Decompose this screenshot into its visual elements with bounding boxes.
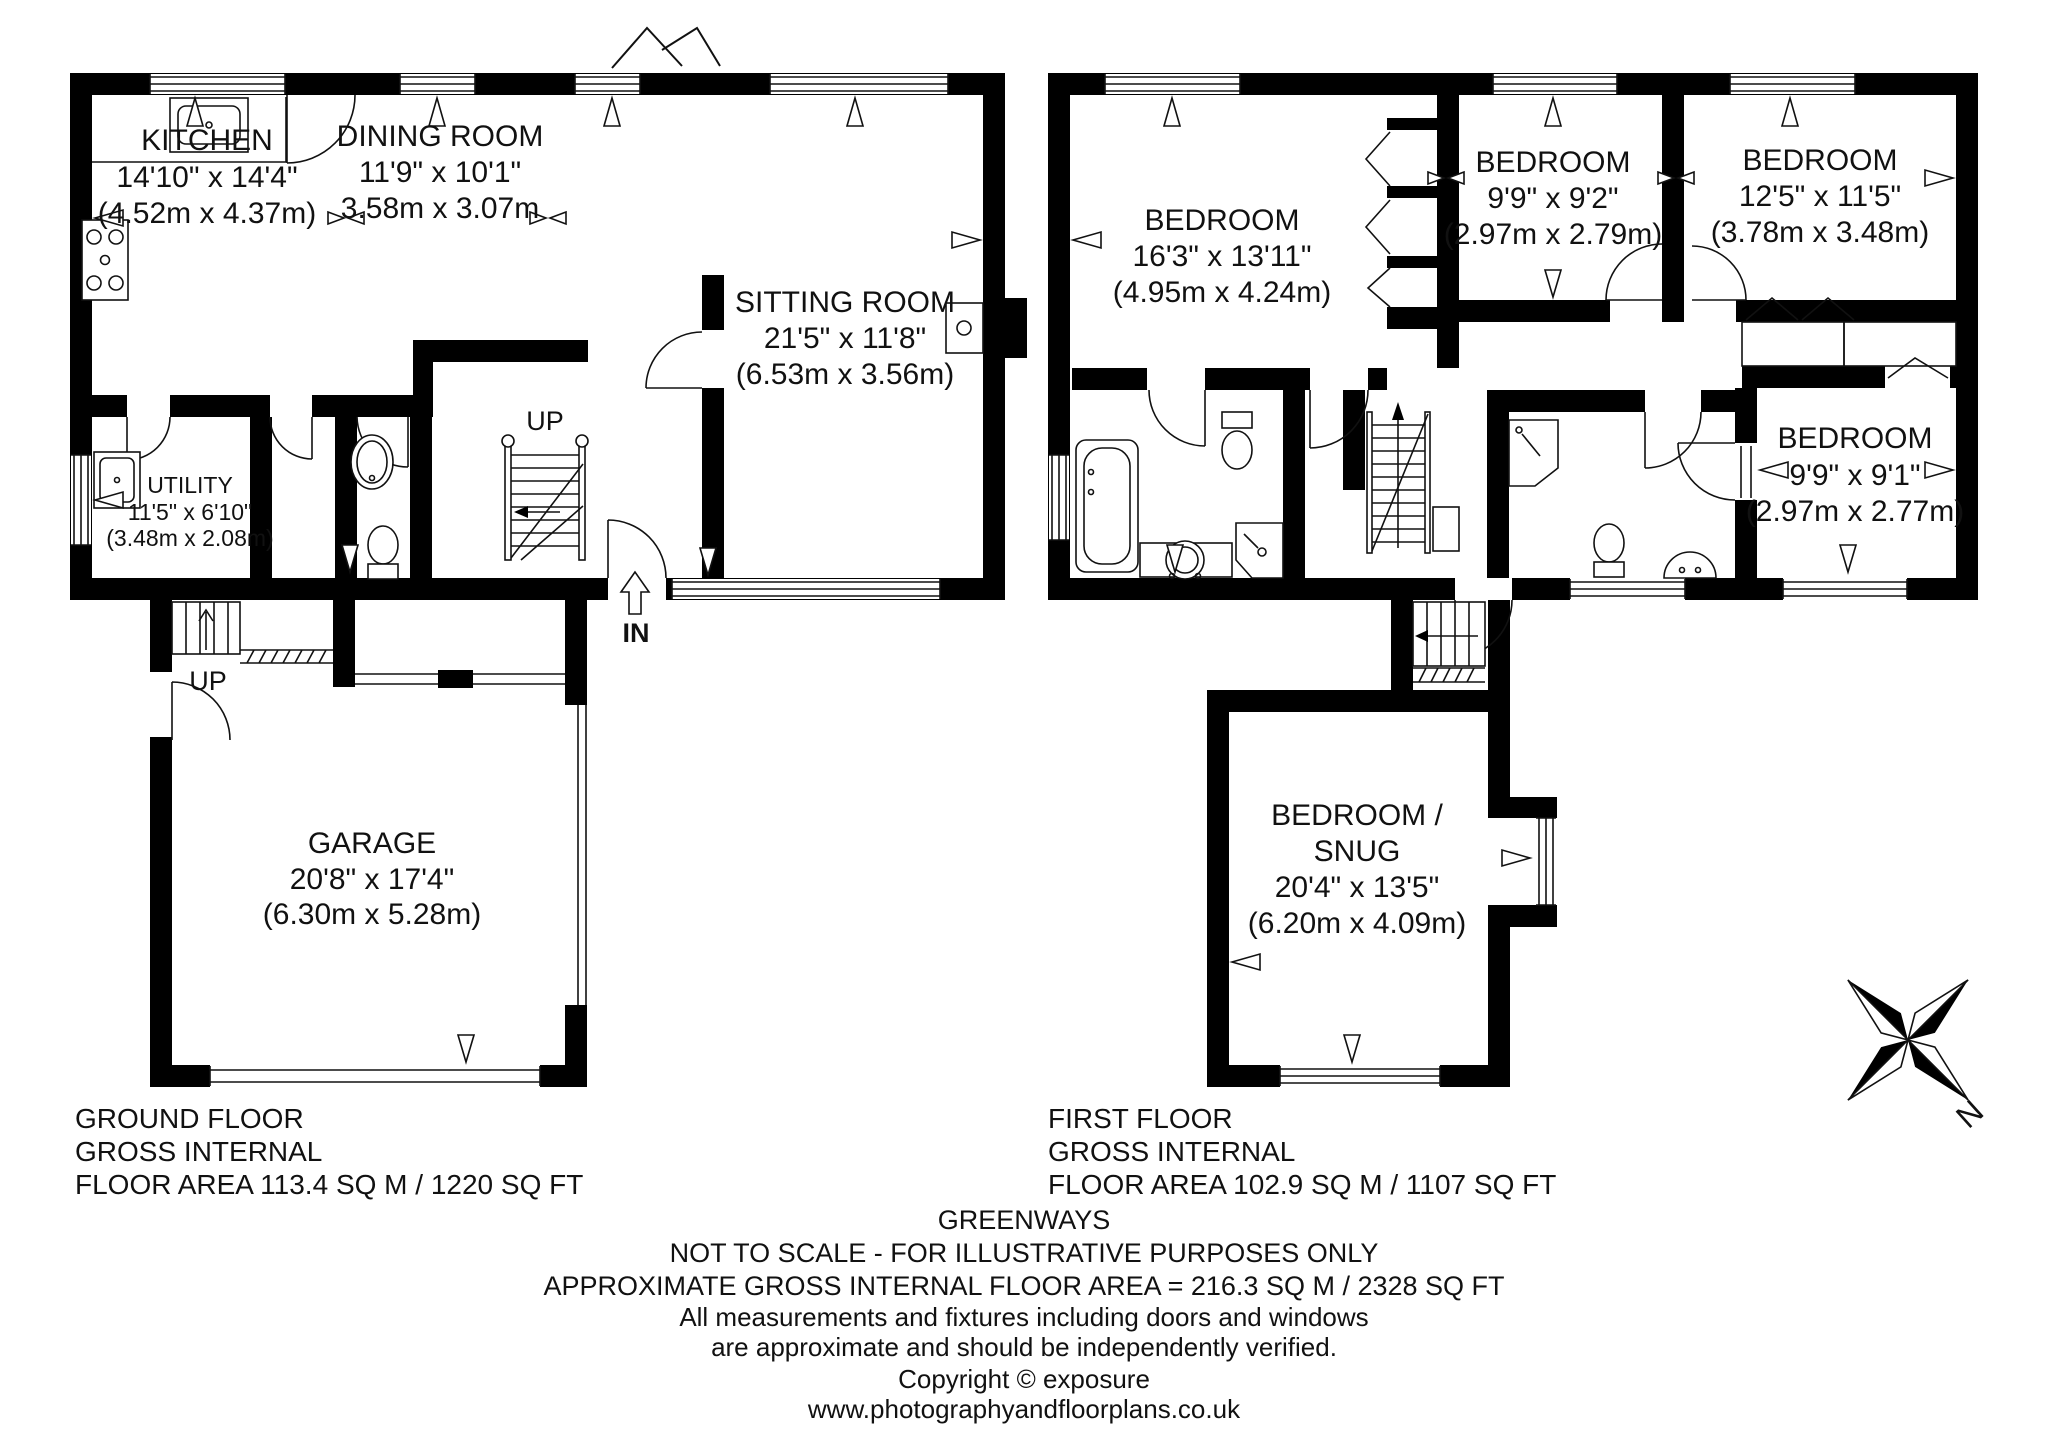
dining-size-m: 3.58m x 3.07m [341,192,539,225]
dining-room-label: DINING ROOM 11'9" x 10'1" 3.58m x 3.07m [337,120,544,225]
dining-size-ft: 11'9" x 10'1" [359,156,521,189]
sitting-name: SITTING ROOM [735,286,955,319]
footer: GREENWAYS NOT TO SCALE - FOR ILLUSTRATIV… [543,1205,1504,1424]
bedroom-3-label: BEDROOM 12'5" x 11'5" (3.78m x 3.48m) [1711,144,1929,249]
bedroom-4-size-m: (2.97m x 2.77m) [1746,495,1964,528]
disclaimer-line-2: are approximate and should be independen… [711,1332,1337,1362]
property-name: GREENWAYS [938,1205,1111,1235]
ensuite-sink-icon [1664,552,1716,578]
bedroom-snug-name-1: BEDROOM / [1271,799,1443,832]
stairwell-void [1413,602,1485,682]
ground-floor-stairs [502,435,588,560]
garage-size-ft: 20'8" x 17'4" [290,863,455,896]
garage-up-label: UP [189,666,227,696]
wc-toilet-icon [368,526,398,579]
garage-name: GARAGE [308,827,436,860]
bedroom-2-size-m: (2.97m x 2.79m) [1444,218,1662,251]
entrance-in-label: IN [623,618,650,648]
website: www.photographyandfloorplans.co.uk [807,1394,1241,1424]
bathroom-shower-icon [1236,523,1283,578]
bedroom-master-size-ft: 16'3" x 13'11" [1133,240,1312,273]
ground-title-line-2: GROSS INTERNAL [75,1136,322,1167]
bedroom-3-size-ft: 12'5" x 11'5" [1739,180,1901,213]
first-floor-plan: BEDROOM 16'3" x 13'11" (4.95m x 4.24m) B… [1048,73,1978,1087]
first-title-line-2: GROSS INTERNAL [1048,1136,1295,1167]
stove-icon [82,220,128,300]
bedroom-snug-label: BEDROOM / SNUG 20'4" x 13'5" (6.20m x 4.… [1248,799,1466,940]
bedroom-2-name: BEDROOM [1475,146,1630,179]
bedroom-master-label: BEDROOM 16'3" x 13'11" (4.95m x 4.24m) [1113,204,1331,309]
kitchen-size-ft: 14'10" x 14'4" [116,161,297,194]
north-label: N [1949,1093,1990,1135]
ground-floor-title: GROUND FLOOR GROSS INTERNAL FLOOR AREA 1… [75,1103,583,1200]
ground-title-line-1: GROUND FLOOR [75,1103,304,1134]
first-title-line-3: FLOOR AREA 102.9 SQ M / 1107 SQ FT [1048,1169,1556,1200]
kitchen-label: KITCHEN 14'10" x 14'4" (4.52m x 4.37m) [98,124,316,230]
total-area: APPROXIMATE GROSS INTERNAL FLOOR AREA = … [543,1271,1504,1301]
garage-size-m: (6.30m x 5.28m) [263,898,481,931]
utility-name: UTILITY [147,472,233,498]
kitchen-size-m: (4.52m x 4.37m) [98,197,316,230]
compass-icon: N [1788,920,2028,1160]
ensuite-toilet-icon [1594,524,1624,577]
stairs-up-label: UP [526,406,564,436]
vanity-sink-icon [1140,541,1232,579]
kitchen-name: KITCHEN [141,124,273,157]
ensuite-shower-icon [1509,420,1558,486]
first-title-line-1: FIRST FLOOR [1048,1103,1233,1134]
bedroom-master-name: BEDROOM [1144,204,1299,237]
disclaimer-line-1: All measurements and fixtures including … [679,1302,1368,1332]
sitting-size-ft: 21'5" x 11'8" [764,322,926,355]
bath-icon [1076,440,1138,572]
floorplan-image: KITCHEN 14'10" x 14'4" (4.52m x 4.37m) D… [0,0,2048,1447]
copyright: Copyright © exposure [898,1364,1150,1394]
bathroom-toilet-icon [1222,412,1252,469]
utility-size-m: (3.48m x 2.08m) [106,525,273,551]
garage-steps [172,602,333,663]
bedroom-3-name: BEDROOM [1742,144,1897,177]
first-floor-title: FIRST FLOOR GROSS INTERNAL FLOOR AREA 10… [1048,1103,1556,1200]
sitting-room-label: SITTING ROOM 21'5" x 11'8" (6.53m x 3.56… [735,286,955,391]
garage-label: GARAGE 20'8" x 17'4" (6.30m x 5.28m) [263,827,481,931]
ground-floor-plan: KITCHEN 14'10" x 14'4" (4.52m x 4.37m) D… [70,28,1027,1087]
utility-size-ft: 11'5" x 6'10" [128,499,252,525]
bedroom-4-size-ft: 9'9" x 9'1" [1789,459,1920,492]
ground-title-line-3: FLOOR AREA 113.4 SQ M / 1220 SQ FT [75,1169,583,1200]
break-line-icon [612,28,720,68]
bedroom-master-size-m: (4.95m x 4.24m) [1113,276,1331,309]
scale-note: NOT TO SCALE - FOR ILLUSTRATIVE PURPOSES… [670,1238,1379,1268]
entrance-arrow-icon [621,572,649,614]
wc-sink-icon [351,435,393,489]
bedroom-2-label: BEDROOM 9'9" x 9'2" (2.97m x 2.79m) [1444,146,1662,251]
bedroom-3-size-m: (3.78m x 3.48m) [1711,216,1929,249]
sitting-size-m: (6.53m x 3.56m) [736,358,954,391]
first-floor-stairs [1367,402,1459,553]
bedroom-snug-size-ft: 20'4" x 13'5" [1275,871,1440,904]
dining-name: DINING ROOM [337,120,544,153]
bedroom-4-name: BEDROOM [1777,422,1932,455]
bedroom-snug-size-m: (6.20m x 4.09m) [1248,907,1466,940]
bedroom-snug-name-2: SNUG [1314,835,1401,868]
bedroom-2-size-ft: 9'9" x 9'2" [1487,182,1618,215]
